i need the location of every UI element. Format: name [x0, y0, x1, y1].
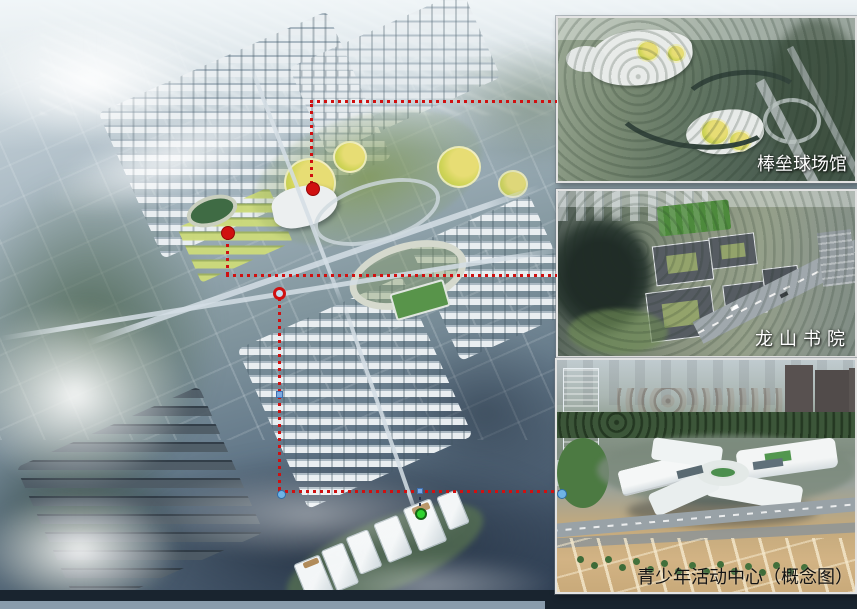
inset3-village-band	[617, 388, 787, 414]
marker-waypoint-bluedot	[277, 490, 286, 499]
marker-waterfront-greendot	[415, 508, 427, 520]
inset3-atrium-garden	[709, 466, 737, 479]
inset-longshan-academy: 龙山书院	[556, 189, 857, 358]
inset-baseball-stadium: 棒垒球场馆	[556, 16, 857, 183]
bottom-light-strip	[0, 601, 545, 609]
leader-academy-horizontal	[226, 274, 557, 277]
inset1-stadium-annex	[566, 46, 606, 72]
inset3-tree-band	[557, 412, 855, 438]
leader-baseball-horizontal	[310, 100, 557, 103]
inset2-building-2	[708, 232, 758, 269]
inset2-car-2	[780, 291, 789, 298]
inset2-building-1	[652, 240, 714, 287]
inset1-diamond-a	[636, 40, 660, 62]
inset2-courtyard-1	[666, 252, 698, 274]
leader-academy-vertical	[226, 237, 229, 277]
marker-waypoint-square-2	[417, 488, 423, 494]
inset3-caption: 青少年活动中心（概念图）	[637, 568, 853, 588]
masterplan-slide: 棒垒球场馆 龙山书院	[0, 0, 857, 609]
inset1-caption: 棒垒球场馆	[757, 155, 847, 175]
inset3-plaza-trees	[577, 556, 584, 563]
marker-waypoint-square-1	[276, 391, 283, 398]
baseball-diamond-2	[333, 141, 367, 173]
marker-youthcenter-ring	[273, 287, 286, 300]
marker-academy-site-dot	[221, 226, 235, 240]
baseball-diamond-3	[437, 146, 481, 188]
inset-youth-activity-center: 青少年活动中心（概念图）	[555, 358, 857, 594]
inset1-diamond-b	[666, 44, 686, 63]
inset2-caption: 龙山书院	[755, 330, 851, 350]
inset2-lawn	[568, 309, 668, 354]
inset2-parking-lot	[817, 229, 857, 287]
marker-inset3-anchor-bluedot	[557, 489, 567, 499]
marker-baseball-site-dot	[306, 182, 320, 196]
leader-baseball-vertical	[310, 104, 313, 186]
inset1-interchange-loop	[763, 98, 821, 144]
inset2-courtyard-2	[720, 243, 746, 260]
